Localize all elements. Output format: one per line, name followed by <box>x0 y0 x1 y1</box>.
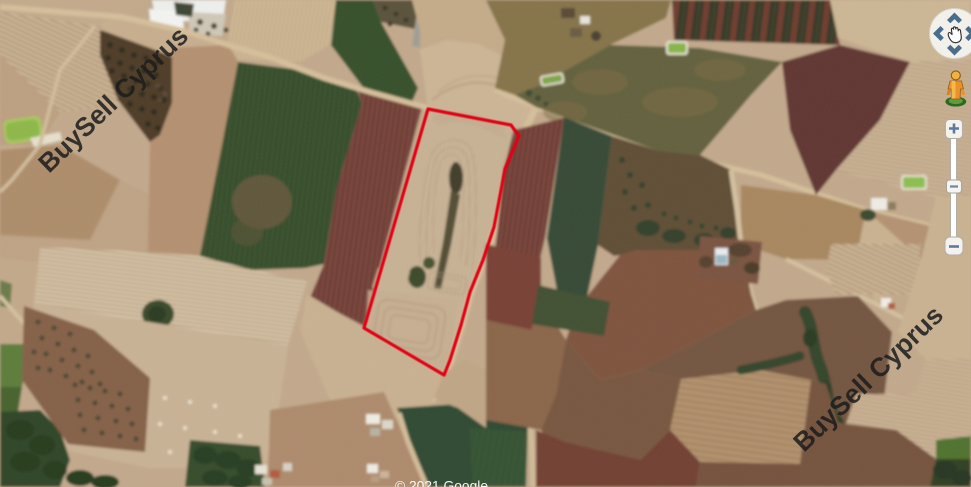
svg-text:© 2021 Google: © 2021 Google <box>395 479 488 487</box>
